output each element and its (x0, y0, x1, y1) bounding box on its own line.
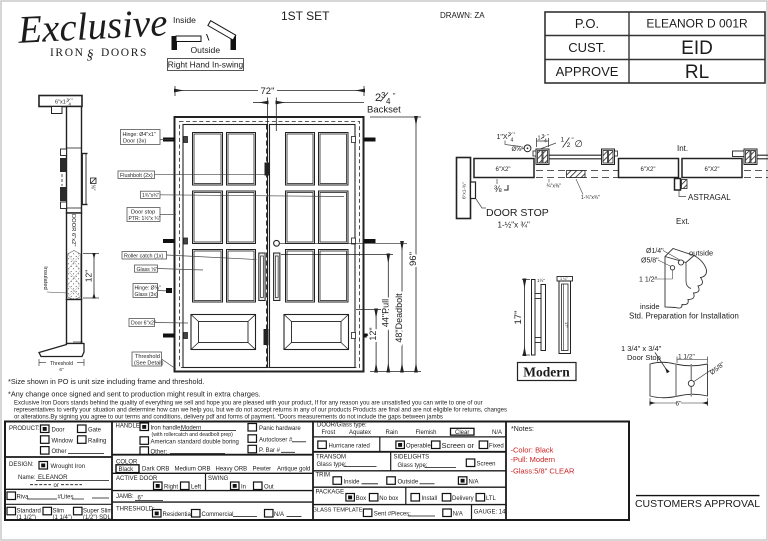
svg-text:APPROVE: APPROVE (556, 64, 619, 79)
svg-text:(1/2") SDL: (1/2") SDL (83, 515, 111, 521)
svg-text:In: In (241, 485, 246, 491)
svg-text:72": 72" (261, 86, 275, 97)
svg-text:Other:: Other: (151, 449, 168, 455)
svg-text:6"x1: 6"x1 (55, 100, 66, 106)
svg-text:CUST.: CUST. (568, 40, 606, 55)
svg-text:ASTRAGAL: ASTRAGAL (688, 193, 731, 202)
svg-text:⅜: ⅜ (494, 184, 502, 194)
svg-text:Ø5/8": Ø5/8" (641, 258, 659, 265)
svg-text:6": 6" (676, 401, 683, 408)
svg-text:Sent #Pieces:: Sent #Pieces: (374, 512, 411, 518)
svg-text:#Lites: #Lites (58, 495, 74, 501)
svg-text:*Notes:: *Notes: (511, 426, 534, 433)
svg-text:": " (547, 134, 549, 140)
svg-text:GLASS TEMPLATE: GLASS TEMPLATE (313, 508, 363, 514)
svg-text:96": 96" (408, 252, 419, 266)
svg-text:Heavy ORB: Heavy ORB (216, 467, 248, 473)
svg-text:1 3/4" x 3/4": 1 3/4" x 3/4" (621, 344, 662, 353)
svg-text:Left: Left (191, 485, 201, 491)
svg-text:DOOR 6"x2": DOOR 6"x2" (70, 214, 76, 246)
svg-text:Dark ORB: Dark ORB (142, 467, 169, 473)
svg-text:Antique gold: Antique gold (277, 467, 310, 473)
svg-text:Std. Preparation for Installat: Std. Preparation for Installation (629, 312, 739, 321)
svg-text:Door Stop: Door Stop (627, 353, 661, 362)
svg-text:§: § (87, 48, 94, 63)
svg-text:Glass ⅝": Glass ⅝" (137, 267, 158, 273)
svg-text:Autocloser #: Autocloser # (259, 437, 293, 443)
svg-text:Right: Right (164, 485, 178, 491)
svg-text:No box: No box (379, 496, 398, 502)
svg-text:Screen: Screen (477, 462, 496, 468)
svg-text:Pewter: Pewter (253, 467, 272, 473)
svg-text:1ST SET: 1ST SET (281, 9, 330, 23)
svg-text:or: or (54, 483, 59, 489)
svg-text:PRODUCT:: PRODUCT: (9, 426, 40, 432)
svg-text:Exclusive Iron Doors stands be: Exclusive Iron Doors stands behind the q… (14, 401, 483, 407)
svg-text:ACTIVE DOOR: ACTIVE DOOR (116, 476, 158, 482)
svg-text:P.O.: P.O. (575, 16, 599, 31)
svg-text:6"X2": 6"X2" (641, 167, 656, 173)
svg-text:(with rollercatch and deadbolt: (with rollercatch and deadbolt prep) (152, 432, 234, 438)
svg-text:Screen or: Screen or (442, 441, 475, 450)
svg-text:(1 1/2"): (1 1/2") (17, 515, 36, 521)
svg-text:17": 17" (564, 322, 569, 328)
svg-text:(1 1/4"): (1 1/4") (53, 515, 72, 521)
svg-text:ELEANOR D 001R: ELEANOR D 001R (646, 17, 748, 31)
svg-text:HANDLE:: HANDLE: (116, 424, 142, 430)
svg-text:1-½"x ¾": 1-½"x ¾" (498, 221, 531, 230)
svg-text:RL: RL (685, 62, 709, 83)
svg-text:44"Pull: 44"Pull (380, 299, 390, 327)
svg-text:DOOR/Glass type:: DOOR/Glass type: (317, 423, 367, 429)
svg-text:Install: Install (422, 496, 438, 502)
svg-text:Clear: Clear (455, 430, 469, 436)
svg-text:Roller catch (1x): Roller catch (1x) (124, 253, 163, 259)
svg-text:DESIGN:: DESIGN: (9, 462, 34, 468)
svg-text:American standard double borin: American standard double boring (151, 439, 239, 445)
svg-text:Glass type:: Glass type: (317, 462, 347, 468)
svg-text:⅝": ⅝" (89, 185, 95, 191)
svg-text:SIDELIGHTS: SIDELIGHTS (394, 455, 430, 461)
svg-text:Medium ORB: Medium ORB (175, 467, 211, 473)
svg-text:THRESHOLD:: THRESHOLD: (116, 507, 155, 513)
svg-text:6"x1-¾": 6"x1-¾" (462, 182, 468, 199)
svg-text:Glass (3x): Glass (3x) (135, 292, 159, 298)
svg-text:Ø⅝": Ø⅝" (512, 147, 524, 153)
svg-text:Super Slim: Super Slim (83, 509, 112, 515)
svg-text:Door 6"x2": Door 6"x2" (131, 321, 156, 327)
svg-text:(See Detail): (See Detail) (134, 361, 164, 367)
svg-text:¾"x⅜": ¾"x⅜" (547, 184, 562, 190)
svg-text:1 1/2": 1 1/2" (639, 277, 658, 284)
svg-text:-Color: Black: -Color: Black (511, 446, 554, 455)
svg-text:12": 12" (368, 327, 378, 340)
svg-text:Fixed: Fixed (489, 444, 504, 450)
svg-text:Door stop: Door stop (131, 210, 155, 216)
svg-text:Delivery: Delivery (452, 496, 474, 502)
svg-text:Threshold: Threshold (135, 354, 160, 360)
svg-text:-Glass:5/8" CLEAR: -Glass:5/8" CLEAR (511, 467, 576, 476)
svg-text:Ext.: Ext. (676, 217, 690, 226)
svg-text:Modern: Modern (523, 365, 570, 380)
svg-text:EID: EID (681, 38, 713, 59)
svg-text:Other: Other (52, 449, 67, 455)
svg-text:Backset: Backset (367, 105, 401, 116)
svg-text:JAMB:: JAMB: (116, 494, 134, 500)
svg-text:Railing: Railing (88, 438, 106, 444)
svg-text:Panic hardware: Panic hardware (259, 426, 301, 432)
svg-text:Outside: Outside (191, 45, 221, 55)
svg-text:representatives to verify your: representatives to verify your situation… (14, 408, 507, 414)
svg-text:17": 17" (513, 311, 524, 325)
svg-text:Commercial: Commercial (202, 512, 234, 518)
svg-text:∅: ∅ (575, 139, 583, 150)
svg-text:DRAWN: ZA: DRAWN: ZA (440, 11, 485, 20)
svg-text:1 ¼": 1 ¼" (560, 277, 568, 281)
svg-text:Operable: Operable (406, 444, 431, 450)
svg-text:1 1/2": 1 1/2" (678, 354, 695, 361)
svg-text:Inside: Inside (173, 15, 196, 25)
svg-text:Inside: Inside (344, 479, 361, 485)
svg-text:TRANSOM: TRANSOM (316, 455, 346, 461)
svg-text:Aquatex: Aquatex (349, 430, 371, 436)
svg-text:Window: Window (52, 438, 74, 444)
svg-text:12": 12" (84, 270, 94, 282)
svg-text:GAUGE: 14: GAUGE: 14 (474, 510, 506, 516)
svg-text:1: 1 (561, 137, 565, 144)
svg-text:Iron handle:: Iron handle: (151, 426, 183, 432)
svg-text:Slim: Slim (53, 509, 65, 515)
svg-text:Box: Box (356, 496, 366, 502)
svg-text:N/A: N/A (469, 479, 479, 485)
svg-text:Outside: Outside (398, 479, 419, 485)
svg-text:Riva: Riva (17, 495, 30, 501)
svg-text:1-¾"x¾": 1-¾"x¾" (581, 195, 600, 201)
svg-text:Door: Door (52, 428, 65, 434)
svg-text:Glass type:: Glass type: (398, 463, 428, 469)
svg-text:Flemish: Flemish (416, 430, 437, 436)
svg-text:2: 2 (567, 142, 571, 149)
svg-text:1¾"x¾": 1¾"x¾" (142, 193, 159, 199)
svg-text:CUSTOMERS APPROVAL: CUSTOMERS APPROVAL (635, 498, 760, 510)
svg-text:-Pull: Modern: -Pull: Modern (511, 455, 556, 464)
svg-text:6"X2": 6"X2" (496, 167, 511, 173)
svg-text:Standard: Standard (17, 509, 41, 515)
svg-text:Black: Black (119, 467, 135, 473)
svg-text:Hurricane rated: Hurricane rated (329, 444, 370, 450)
svg-text:6": 6" (59, 367, 64, 372)
svg-text:Ø1/4": Ø1/4" (646, 248, 664, 255)
svg-text:P. Bar #: P. Bar # (259, 448, 281, 454)
svg-text:PACKAGE: PACKAGE (316, 490, 345, 496)
svg-text:DOORS: DOORS (101, 47, 148, 59)
svg-text:1"X: 1"X (497, 134, 508, 141)
svg-text:Int.: Int. (677, 144, 688, 153)
svg-text:N/A: N/A (274, 512, 284, 518)
svg-text:6"X2": 6"X2" (705, 167, 720, 173)
svg-text:": " (514, 133, 516, 139)
svg-text:outside: outside (689, 249, 713, 258)
svg-text:Hinge: Ø⅝": Hinge: Ø⅝" (135, 286, 161, 292)
svg-text:DOOR STOP: DOOR STOP (486, 207, 549, 219)
svg-text:inside: inside (640, 302, 660, 311)
svg-text:PTR: 1½"x ¾": PTR: 1½"x ¾" (129, 215, 161, 222)
svg-text:Residential: Residential (163, 512, 193, 518)
svg-text:or alterations.By signing you: or alterations.By signing you agree to o… (14, 415, 443, 421)
svg-text:Wrought Iron: Wrought Iron (51, 464, 86, 470)
svg-text:Rain: Rain (386, 430, 398, 436)
svg-text:N/A: N/A (453, 512, 463, 518)
svg-text:Right Hand In-swing: Right Hand In-swing (168, 59, 244, 69)
svg-text:SWING: SWING (208, 476, 229, 482)
svg-text:48"Deadbolt: 48"Deadbolt (394, 293, 404, 343)
svg-text:Exclusive: Exclusive (16, 1, 168, 52)
svg-text:Hinge: Ø4"x1": Hinge: Ø4"x1" (123, 132, 156, 138)
svg-text:Gate: Gate (88, 428, 102, 434)
svg-text:IRON: IRON (50, 47, 85, 59)
svg-text:LTL: LTL (486, 496, 497, 502)
svg-text:Out: Out (264, 485, 274, 491)
svg-text:*Size shown in PO is unit size: *Size shown in PO is unit size including… (8, 377, 204, 386)
svg-text:": " (572, 138, 574, 144)
svg-text:N/A: N/A (492, 430, 502, 436)
svg-text:TRIM: TRIM (316, 473, 331, 479)
svg-text:1½": 1½" (537, 277, 545, 283)
svg-text:Name:: Name: (18, 475, 36, 481)
svg-text:*Any change once signed and se: *Any change once signed and sent to prod… (8, 390, 261, 399)
svg-text:Flushbolt (2x): Flushbolt (2x) (120, 173, 153, 179)
svg-text:ELEANOR: ELEANOR (38, 474, 68, 481)
svg-text:Door (3x): Door (3x) (123, 138, 146, 144)
svg-text:Frost: Frost (322, 430, 336, 436)
svg-text:Insulated: Insulated (42, 266, 48, 290)
